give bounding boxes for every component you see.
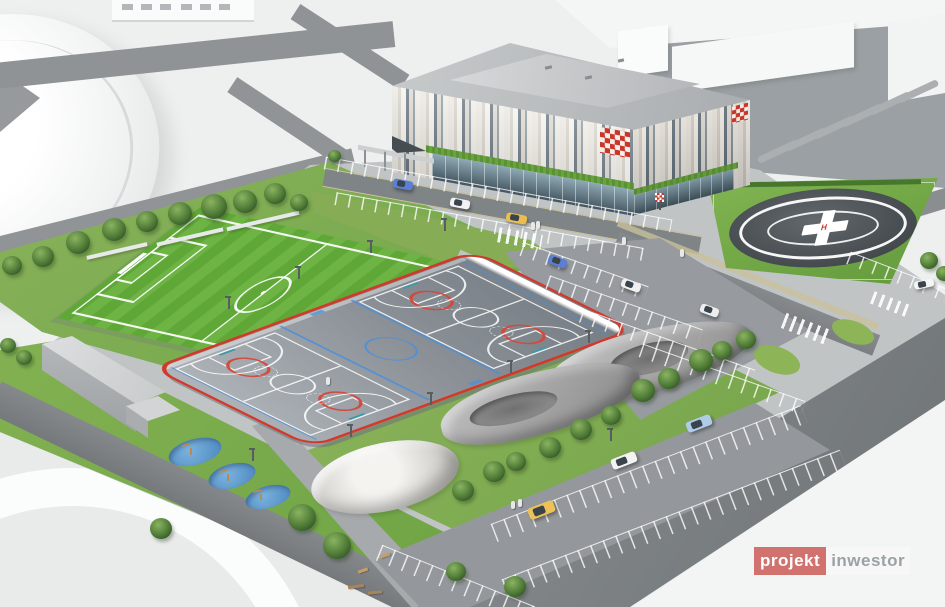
tree bbox=[483, 461, 505, 482]
person bbox=[536, 221, 540, 229]
bowl-dip bbox=[467, 384, 561, 433]
playground-equipment bbox=[190, 448, 192, 455]
person bbox=[622, 237, 626, 245]
tree bbox=[446, 562, 466, 581]
red-checker-accent bbox=[600, 127, 630, 158]
tree bbox=[264, 183, 286, 204]
tree bbox=[66, 231, 90, 254]
tree bbox=[504, 576, 526, 597]
light-pole bbox=[588, 330, 590, 343]
tree bbox=[136, 211, 158, 232]
person bbox=[511, 501, 515, 509]
tree bbox=[712, 341, 732, 360]
tree bbox=[201, 194, 227, 219]
person bbox=[680, 249, 684, 257]
window bbox=[219, 4, 230, 10]
rink-blue-box-bottom bbox=[468, 379, 484, 385]
light-pole bbox=[298, 266, 300, 279]
window bbox=[200, 4, 211, 10]
tree bbox=[102, 218, 126, 241]
marker-pole bbox=[659, 202, 661, 210]
tree bbox=[288, 504, 316, 531]
tree bbox=[452, 480, 474, 501]
tree bbox=[631, 379, 655, 402]
tree bbox=[539, 437, 561, 458]
tree bbox=[323, 532, 351, 559]
window bbox=[141, 4, 152, 10]
playground-equipment bbox=[227, 474, 229, 481]
playground-equipment bbox=[260, 494, 262, 500]
watermark-logo: projekt inwestor bbox=[754, 547, 910, 575]
tree bbox=[920, 252, 938, 269]
light-pole bbox=[350, 424, 352, 437]
tree bbox=[290, 194, 308, 211]
aerial-render: H projekt inwestor bbox=[0, 0, 945, 607]
light-pole bbox=[252, 448, 254, 461]
light-pole bbox=[510, 360, 512, 373]
window bbox=[181, 4, 192, 10]
light-pole bbox=[228, 296, 230, 309]
person bbox=[531, 222, 535, 230]
tree bbox=[32, 246, 54, 267]
person bbox=[326, 377, 330, 385]
tree bbox=[150, 518, 172, 539]
tree bbox=[2, 256, 22, 275]
tree bbox=[233, 190, 257, 213]
tree bbox=[658, 368, 680, 389]
watermark-secondary: inwestor bbox=[826, 547, 910, 575]
tree bbox=[736, 330, 756, 349]
light-pole bbox=[370, 240, 372, 253]
rink-blue-box-top bbox=[309, 310, 325, 316]
person bbox=[518, 499, 522, 507]
tree bbox=[689, 349, 713, 372]
rink-center-circle bbox=[353, 333, 429, 366]
light-pole bbox=[610, 428, 612, 441]
light-pole bbox=[444, 218, 446, 231]
tree bbox=[506, 452, 526, 471]
tree bbox=[168, 202, 192, 225]
tree bbox=[601, 406, 621, 425]
watermark-primary: projekt bbox=[754, 547, 826, 575]
window bbox=[160, 4, 171, 10]
light-pole bbox=[430, 392, 432, 405]
checkered-marker-icon bbox=[655, 193, 664, 202]
window bbox=[122, 4, 133, 10]
tree bbox=[570, 419, 592, 440]
tree bbox=[936, 266, 945, 281]
